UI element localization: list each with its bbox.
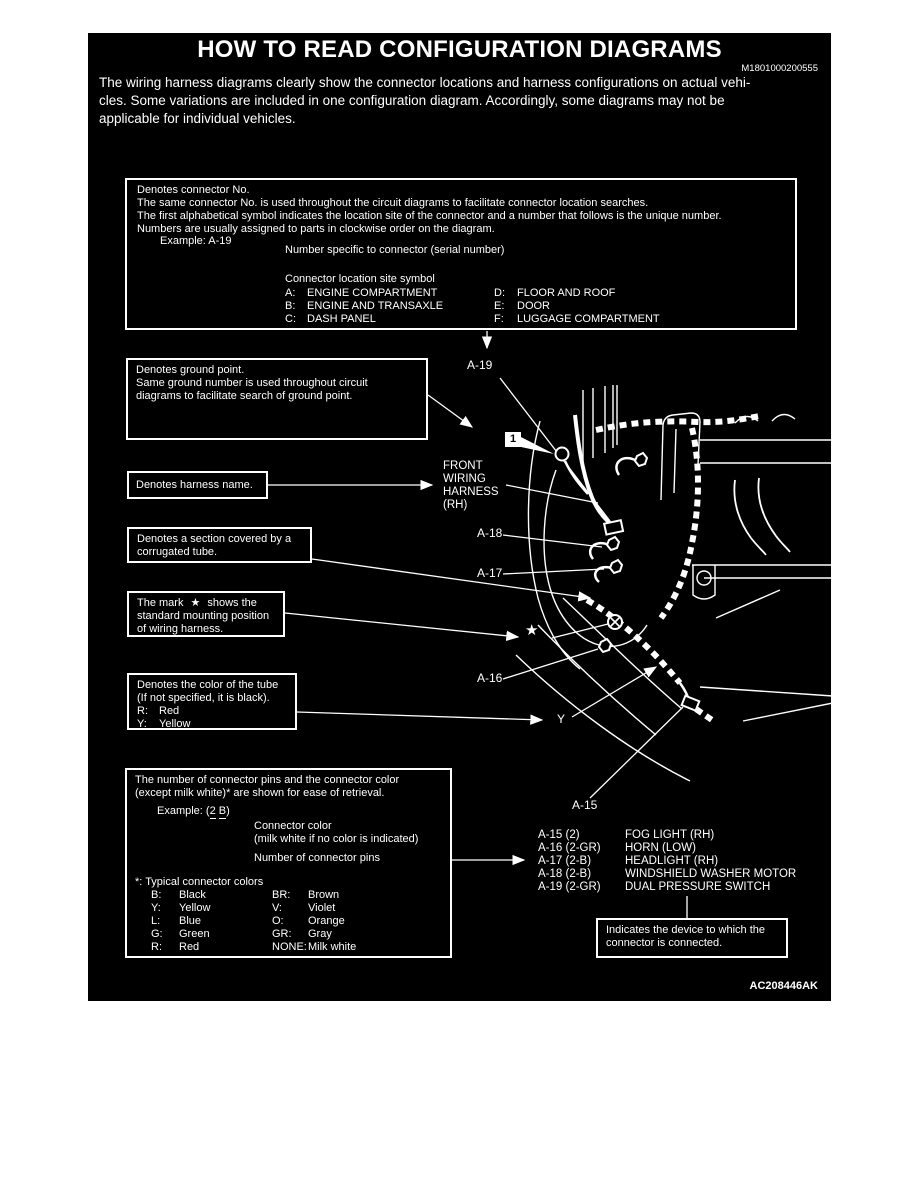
note-line: of wiring harness. — [137, 623, 223, 635]
note-line: Indicates the device to which the — [606, 924, 765, 936]
color-name: Gray — [308, 928, 332, 940]
color-name: Blue — [179, 915, 201, 927]
harness-name-line: WIRING — [443, 473, 486, 486]
color-name: Yellow — [179, 902, 210, 914]
pins-example-color: B — [219, 805, 226, 819]
note-line: Denotes connector No. — [137, 184, 250, 196]
note-line: The number of connector pins and the con… — [135, 774, 399, 786]
pins-example-prefix: Example: ( — [157, 805, 210, 817]
tube-color-box: Denotes the color of the tube (If not sp… — [127, 673, 297, 730]
ground-pointer-wedge — [521, 437, 554, 454]
connector-pins-box: The number of connector pins and the con… — [125, 768, 452, 958]
connected-device-box: Indicates the device to which the connec… — [596, 918, 788, 958]
note-line: standard mounting position — [137, 610, 269, 622]
site-code: C: — [285, 313, 296, 325]
site-code: D: — [494, 287, 505, 299]
color-name: Orange — [308, 915, 345, 927]
pins-example: Example: (2 B) — [157, 805, 230, 817]
site-name: DASH PANEL — [307, 313, 376, 325]
pins-example-pins: 2 — [210, 805, 216, 819]
harness-name-line: HARNESS — [443, 486, 499, 499]
harness-name-box: Denotes harness name. — [127, 471, 268, 499]
site-name: DOOR — [517, 300, 550, 312]
connector-a19-icon — [604, 520, 623, 534]
site-symbol-note: Connector location site symbol — [285, 273, 435, 285]
color-name: Milk white — [308, 941, 356, 953]
star-mark: ★ — [525, 621, 538, 639]
color-name: Brown — [308, 889, 339, 901]
note-line: Denotes the color of the tube — [137, 679, 278, 691]
star-line-pre: The mark — [137, 597, 183, 609]
color-code: L: — [151, 915, 179, 927]
connector-id: A-16 (2-GR) — [538, 842, 601, 855]
label-a19: A-19 — [467, 359, 492, 372]
note-line: The first alphabetical symbol indicates … — [137, 210, 722, 222]
label-a18: A-18 — [477, 527, 502, 540]
connector-a15-icon — [682, 696, 700, 711]
color-name: Black — [179, 889, 206, 901]
note-line: Denotes ground point. — [136, 364, 244, 376]
label-y: Y — [557, 713, 565, 726]
site-code: F: — [494, 313, 504, 325]
note-line: The mark★shows the — [137, 597, 257, 609]
connector-device: DUAL PRESSURE SWITCH — [625, 881, 770, 894]
note-line: corrugated tube. — [137, 546, 217, 558]
label-a15: A-15 — [572, 799, 597, 812]
connector-id: A-18 (2-B) — [538, 868, 591, 881]
connector-top-icon — [635, 453, 647, 466]
manual-page: HOW TO READ CONFIGURATION DIAGRAMS M1801… — [0, 0, 918, 1188]
connector-a17-icon — [610, 560, 622, 573]
harness-name-line: FRONT — [443, 460, 483, 473]
note-line: Denotes a section covered by a — [137, 533, 291, 545]
color-code: R: — [151, 941, 179, 953]
harness-name-line: (RH) — [443, 499, 467, 512]
pins-count-note: Number of connector pins — [254, 852, 380, 864]
ground-point-box: Denotes ground point. Same ground number… — [126, 358, 428, 440]
connector-device: HORN (LOW) — [625, 842, 696, 855]
note-line: Same ground number is used throughout ci… — [136, 377, 368, 389]
color-name: Green — [179, 928, 210, 940]
tube-color-code: R: — [137, 705, 148, 717]
star-mark-box: The mark★shows the standard mounting pos… — [127, 591, 285, 637]
star-line-post: shows the — [207, 597, 257, 609]
connector-color-note2: (milk white if no color is indicated) — [254, 833, 418, 845]
tube-color-name: Red — [159, 705, 179, 717]
color-code: NONE: — [272, 941, 308, 953]
serial-number-note: Number specific to connector (serial num… — [285, 244, 504, 256]
tube-color-code: Y: — [137, 718, 147, 730]
connector-device: WINDSHIELD WASHER MOTOR — [625, 868, 796, 881]
color-code: Y: — [151, 902, 179, 914]
connector-a18-icon — [607, 537, 619, 550]
connector-device: FOG LIGHT (RH) — [625, 829, 714, 842]
connector-a16-icon — [599, 639, 611, 652]
site-name: FLOOR AND ROOF — [517, 287, 615, 299]
label-a17: A-17 — [477, 567, 502, 580]
note-line: (If not specified, it is black). — [137, 692, 270, 704]
note-line: connector is connected. — [606, 937, 722, 949]
connector-id: A-17 (2-B) — [538, 855, 591, 868]
color-code: V: — [272, 902, 308, 914]
site-code: E: — [494, 300, 504, 312]
note-line: diagrams to facilitate search of ground … — [136, 390, 352, 402]
site-name: ENGINE AND TRANSAXLE — [307, 300, 443, 312]
color-name: Red — [179, 941, 199, 953]
site-name: LUGGAGE COMPARTMENT — [517, 313, 660, 325]
tube-color-name: Yellow — [159, 718, 190, 730]
pins-example-suffix: ) — [226, 805, 230, 817]
site-code: A: — [285, 287, 295, 299]
figure-plate: HOW TO READ CONFIGURATION DIAGRAMS M1801… — [88, 33, 831, 1001]
ground-eyelet-icon — [556, 448, 569, 461]
color-code: BR: — [272, 889, 308, 901]
connector-device: HEADLIGHT (RH) — [625, 855, 718, 868]
color-code: B: — [151, 889, 179, 901]
connector-icons — [521, 437, 699, 711]
site-code: B: — [285, 300, 295, 312]
connector-id: A-19 (2-GR) — [538, 881, 601, 894]
note-line: The same connector No. is used throughou… — [137, 197, 648, 209]
note-line: (except milk white)* are shown for ease … — [135, 787, 384, 799]
figure-code: AC208446AK — [750, 980, 818, 992]
star-icon: ★ — [190, 597, 200, 609]
note-line: Numbers are usually assigned to parts in… — [137, 223, 495, 235]
color-code: GR: — [272, 928, 308, 940]
label-a16: A-16 — [477, 672, 502, 685]
corrugated-tube-box: Denotes a section covered by a corrugate… — [127, 527, 312, 563]
site-name: ENGINE COMPARTMENT — [307, 287, 437, 299]
ground-number-badge: 1 — [505, 432, 521, 447]
connector-color-note: Connector color — [254, 820, 332, 832]
legend-title: *: Typical connector colors — [135, 876, 263, 888]
color-code: O: — [272, 915, 308, 927]
color-name: Violet — [308, 902, 335, 914]
color-code: G: — [151, 928, 179, 940]
connector-note-box: Denotes connector No. The same connector… — [125, 178, 797, 330]
connector-example: Example: A-19 — [160, 235, 232, 247]
connector-id: A-15 (2) — [538, 829, 580, 842]
note-line: Denotes harness name. — [136, 479, 253, 491]
